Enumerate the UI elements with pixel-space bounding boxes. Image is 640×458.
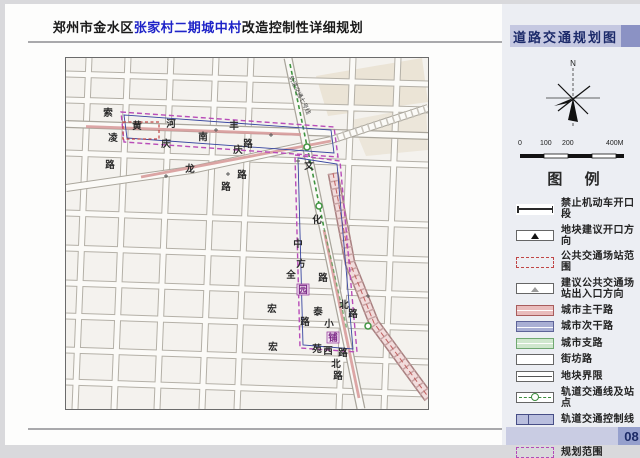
legend-item-no-motor-opening: 禁止机动车开口段 bbox=[516, 198, 640, 220]
road-label-char: 西 bbox=[323, 346, 333, 357]
road-label-char: 小 bbox=[323, 318, 334, 330]
document-page: 郑州市金水区张家村二期城中村改造控制性详细规划 bbox=[5, 4, 640, 445]
page-title: 郑州市金水区张家村二期城中村改造控制性详细规划 bbox=[38, 17, 378, 36]
road-label-char: 文 bbox=[303, 160, 314, 172]
road-label-char: 北 bbox=[331, 358, 341, 370]
legend-item-transit-depot-range: 公共交通场站范围 bbox=[516, 251, 640, 273]
legend-label-parcel-boundary: 地块界限 bbox=[561, 371, 603, 382]
road-label-char: 方 bbox=[296, 258, 306, 270]
road-label-char: 凌 bbox=[108, 132, 118, 144]
road-label-char: 宏 bbox=[268, 341, 278, 353]
scale-label-100: 100 bbox=[540, 140, 552, 147]
legend-label-city-branch: 城市支路 bbox=[561, 338, 603, 349]
legend-item-rail-line-stations: 轨道交通线及站点 bbox=[516, 387, 640, 409]
legend-label-city-arterial: 城市主干路 bbox=[561, 305, 614, 316]
legend-item-planning-scope: 规划范围 bbox=[516, 446, 640, 458]
footer-divider bbox=[28, 428, 504, 430]
title-suffix: 改造控制性详细规划 bbox=[242, 20, 364, 35]
road-label-char: 路 bbox=[333, 370, 343, 382]
legend-symbol-parcel-boundary bbox=[516, 371, 554, 382]
road-label-char: 黄 bbox=[132, 120, 142, 132]
scale-bar-graphic bbox=[518, 152, 628, 162]
scale-labels: 0 100 200 400M bbox=[518, 140, 628, 149]
legend-item-parcel-boundary: 地块界限 bbox=[516, 370, 640, 382]
rail-station bbox=[304, 144, 310, 150]
legend-label-neighborhood-road: 街坊路 bbox=[561, 354, 593, 365]
legend-label-planning-scope: 规划范围 bbox=[561, 447, 603, 458]
legend-symbol-rail-line-stations bbox=[516, 392, 554, 403]
road-label-char: 中 bbox=[293, 238, 303, 250]
sidebar-header: 道路交通规划图 bbox=[510, 25, 640, 47]
legend-title: 图 例 bbox=[502, 168, 640, 189]
legend-symbol-transit-entrance bbox=[516, 283, 554, 294]
legend-list: 禁止机动车开口段地块建议开口方向公共交通场站范围建议公共交通场站出入口方向城市主… bbox=[516, 198, 640, 458]
scale-label-0: 0 bbox=[518, 140, 522, 147]
legend-label-no-motor-opening: 禁止机动车开口段 bbox=[561, 198, 640, 220]
road-label-char: 庆 bbox=[160, 138, 171, 150]
sidebar: 道路交通规划图 N 0 100 200 400M bbox=[502, 4, 640, 445]
road-label-char: 路 bbox=[348, 308, 358, 320]
road-label-char: 路 bbox=[105, 159, 115, 171]
road-traffic-map: 轨道交通七号线 索凌路黄河南路庆丰庆路龙路文化中方园路全路泰小铺宏宏苑西路北路北… bbox=[65, 57, 429, 410]
map-canvas: 轨道交通七号线 索凌路黄河南路庆丰庆路龙路文化中方园路全路泰小铺宏宏苑西路北路北… bbox=[66, 58, 428, 409]
legend-item-city-branch: 城市支路 bbox=[516, 337, 640, 349]
legend-label-parcel-opening-dir: 地块建议开口方向 bbox=[561, 225, 640, 247]
road-label-char: 苑 bbox=[311, 343, 322, 355]
legend-label-transit-depot-range: 公共交通场站范围 bbox=[561, 251, 640, 273]
scale-bar: 0 100 200 400M bbox=[518, 140, 628, 162]
road-label-char: 化 bbox=[312, 214, 322, 226]
legend-label-transit-entrance: 建议公共交通场站出入口方向 bbox=[561, 278, 640, 300]
legend-symbol-city-arterial bbox=[516, 305, 554, 316]
road-label-char: 铺 bbox=[328, 332, 338, 344]
legend-symbol-city-secondary bbox=[516, 321, 554, 332]
legend-symbol-transit-depot-range bbox=[516, 257, 554, 268]
title-prefix: 郑州市金水区 bbox=[53, 20, 134, 35]
legend-item-neighborhood-road: 街坊路 bbox=[516, 354, 640, 366]
rail-station bbox=[365, 323, 371, 329]
legend-item-transit-entrance: 建议公共交通场站出入口方向 bbox=[516, 278, 640, 300]
road-label-char: 路 bbox=[237, 169, 247, 181]
road-label-char: 路 bbox=[338, 347, 348, 359]
sidebar-title: 道路交通规划图 bbox=[510, 27, 621, 46]
road-label-char: 泰 bbox=[312, 306, 323, 318]
road-label-char: 宏 bbox=[267, 303, 277, 315]
scale-label-400: 400M bbox=[606, 140, 624, 147]
legend-symbol-city-branch bbox=[516, 338, 554, 349]
page-number-strip: 08 bbox=[506, 427, 640, 445]
legend-item-parcel-opening-dir: 地块建议开口方向 bbox=[516, 225, 640, 247]
rail-station bbox=[316, 203, 322, 209]
title-highlight: 张家村二期城中村 bbox=[134, 20, 242, 35]
legend-item-rail-control-line: 轨道交通控制线 bbox=[516, 413, 640, 425]
legend-label-rail-line-stations: 轨道交通线及站点 bbox=[561, 387, 640, 409]
road-label-char: 索 bbox=[103, 107, 113, 119]
road-label-char: 路 bbox=[243, 138, 253, 150]
road-label-char: 庆 bbox=[232, 144, 243, 156]
north-compass-icon: N bbox=[528, 56, 618, 136]
road-label-char: 南 bbox=[198, 131, 208, 143]
sidebar-header-accent bbox=[621, 25, 640, 47]
road-label-char: 路 bbox=[300, 316, 310, 328]
road-label-char: 路 bbox=[221, 181, 231, 193]
road-name-labels: 索凌路黄河南路庆丰庆路龙路文化中方园路全路泰小铺宏宏苑西路北路北路 bbox=[103, 107, 358, 382]
legend-symbol-rail-control-line bbox=[516, 414, 554, 425]
road-label-char: 路 bbox=[318, 272, 328, 284]
legend-symbol-parcel-opening-dir bbox=[516, 230, 554, 241]
scale-label-200: 200 bbox=[562, 140, 574, 147]
road-label-char: 园 bbox=[298, 285, 308, 296]
road-label-char: 河 bbox=[166, 118, 176, 130]
road-label-char: 龙 bbox=[184, 163, 195, 175]
legend-item-city-arterial: 城市主干路 bbox=[516, 304, 640, 316]
north-label: N bbox=[570, 59, 576, 68]
road-label-char: 全 bbox=[285, 269, 296, 281]
legend-symbol-neighborhood-road bbox=[516, 354, 554, 365]
legend-item-city-secondary: 城市次干路 bbox=[516, 321, 640, 333]
page-number: 08 bbox=[618, 427, 640, 445]
road-label-char: 丰 bbox=[229, 120, 239, 132]
legend-label-rail-control-line: 轨道交通控制线 bbox=[561, 414, 635, 425]
legend-label-city-secondary: 城市次干路 bbox=[561, 321, 614, 332]
title-divider bbox=[28, 41, 510, 43]
legend-symbol-no-motor-opening bbox=[516, 204, 554, 215]
legend-symbol-planning-scope bbox=[516, 447, 554, 458]
